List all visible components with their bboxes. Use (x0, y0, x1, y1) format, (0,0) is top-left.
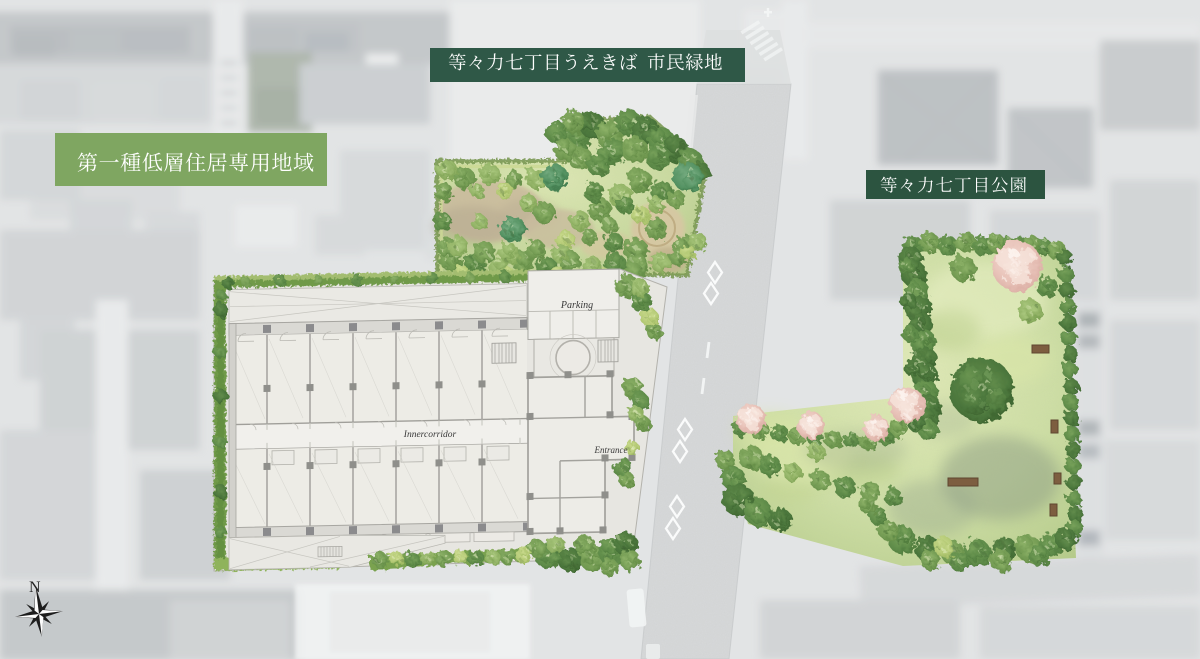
svg-text:Entrance: Entrance (594, 445, 628, 455)
svg-text:Parking: Parking (560, 300, 593, 311)
svg-text:Innercorridor: Innercorridor (403, 430, 457, 440)
svg-text:N: N (29, 579, 41, 596)
